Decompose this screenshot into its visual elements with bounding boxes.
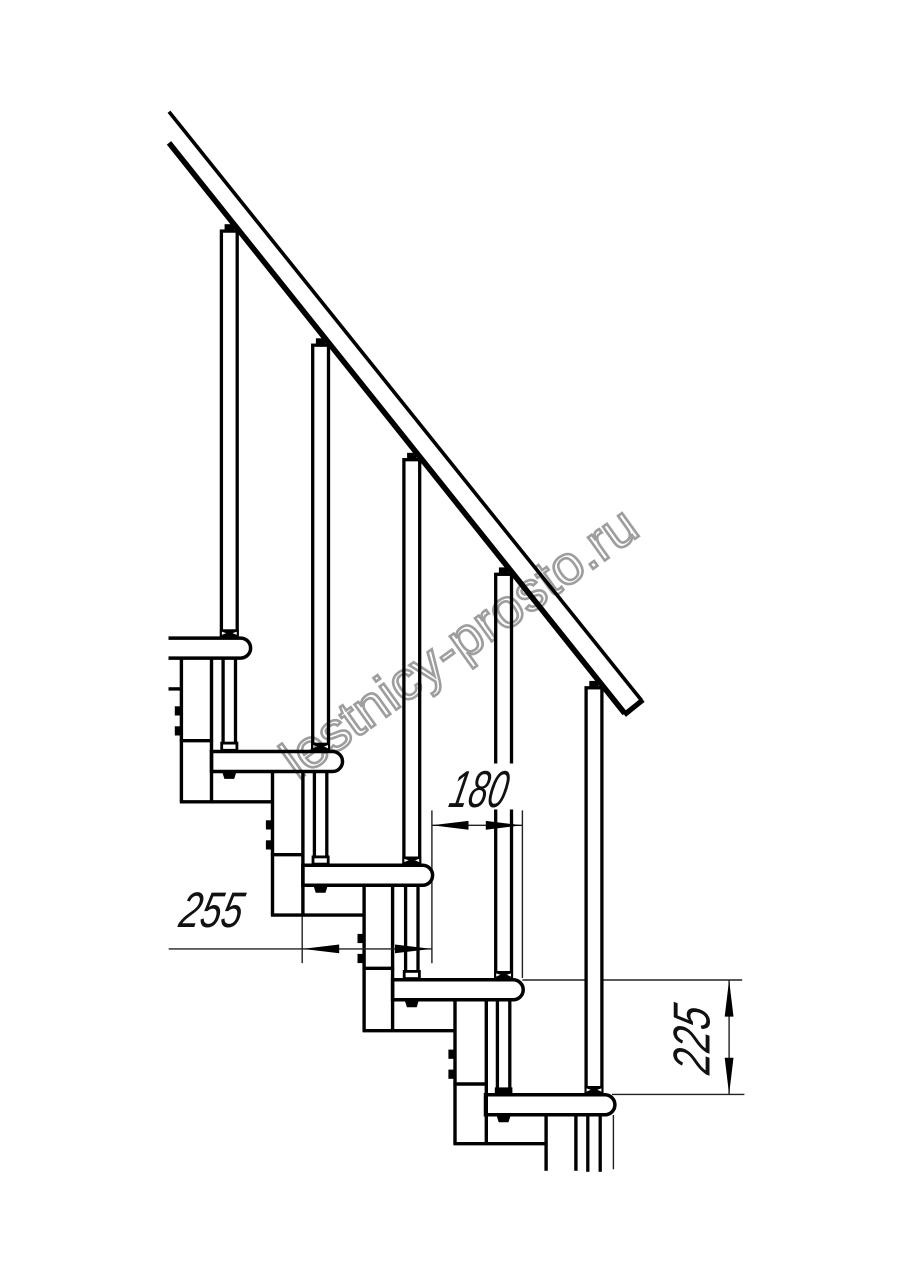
svg-text:255: 255 xyxy=(174,882,249,938)
svg-text:225: 225 xyxy=(663,999,721,1079)
